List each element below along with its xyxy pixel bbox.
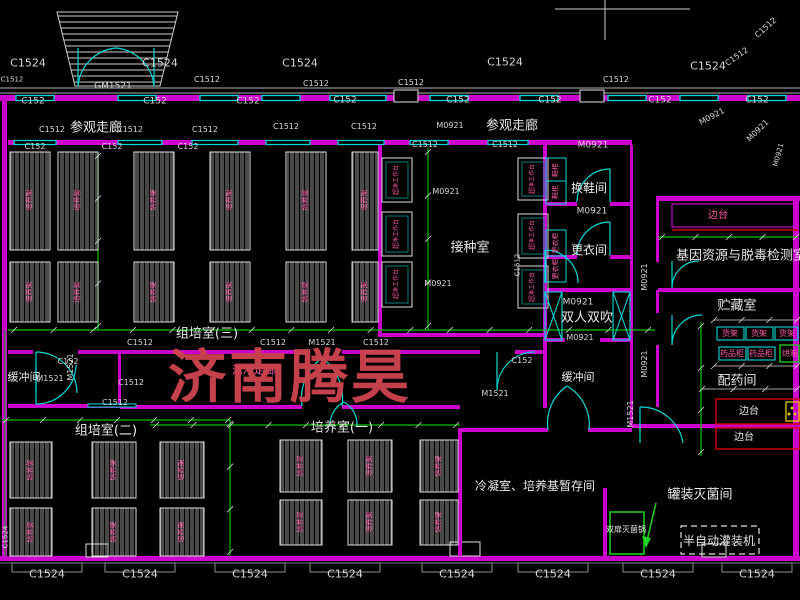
side-bench-box xyxy=(672,204,798,227)
dispensary-benches xyxy=(716,399,800,449)
exterior-right-wall xyxy=(793,196,799,560)
clean-benches xyxy=(382,158,548,308)
dimension-lines-white xyxy=(702,320,797,389)
entrance-double-door xyxy=(78,48,154,86)
entrance-canopy xyxy=(57,12,178,86)
cad-floorplan-canvas: C1524C1524C1524C1524C1524C1512C1512GM152… xyxy=(0,0,800,600)
storage-shelves xyxy=(717,327,798,360)
watermark-text: 济南腾昊 xyxy=(168,344,418,410)
air-shower xyxy=(545,292,630,340)
leader-lines xyxy=(555,0,690,40)
buffer-window xyxy=(88,404,136,407)
lockers xyxy=(546,158,566,282)
floorplan-drawing xyxy=(0,0,800,600)
corridor-south-wall xyxy=(8,140,632,145)
exterior-top-wall xyxy=(0,88,800,102)
double-door-sterilizer xyxy=(610,503,656,554)
